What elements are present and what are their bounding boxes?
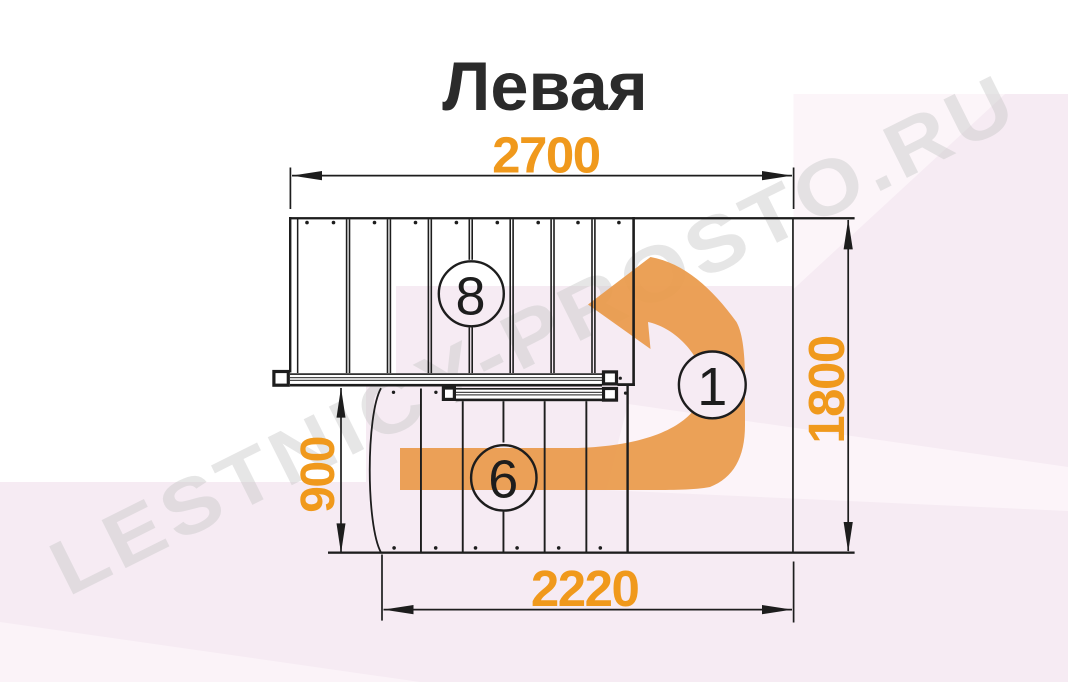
svg-text:2700: 2700	[492, 127, 600, 184]
svg-text:1800: 1800	[798, 336, 855, 444]
svg-text:900: 900	[292, 437, 345, 513]
svg-text:1: 1	[697, 357, 727, 417]
svg-text:6: 6	[488, 450, 518, 510]
svg-text:Левая: Левая	[442, 48, 647, 125]
svg-text:2220: 2220	[531, 560, 639, 617]
svg-text:8: 8	[455, 267, 485, 327]
